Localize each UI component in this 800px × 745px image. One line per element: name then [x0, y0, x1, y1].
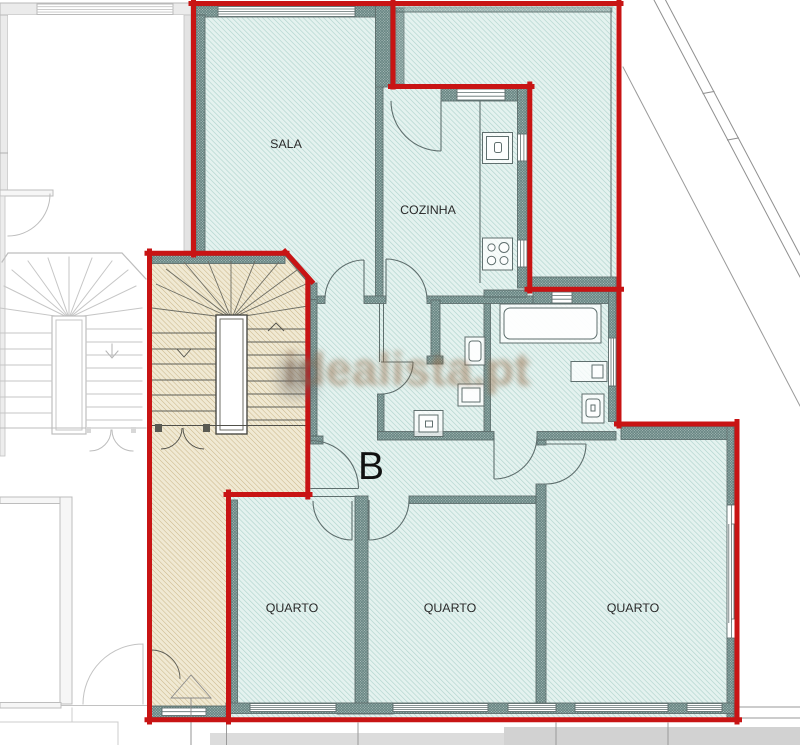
svg-text:QUARTO: QUARTO — [266, 601, 319, 615]
svg-text:COZINHA: COZINHA — [400, 203, 457, 217]
svg-text:QUARTO: QUARTO — [607, 601, 660, 615]
svg-text:B: B — [358, 445, 384, 488]
svg-text:QUARTO: QUARTO — [424, 601, 477, 615]
svg-text:SALA: SALA — [270, 137, 302, 151]
